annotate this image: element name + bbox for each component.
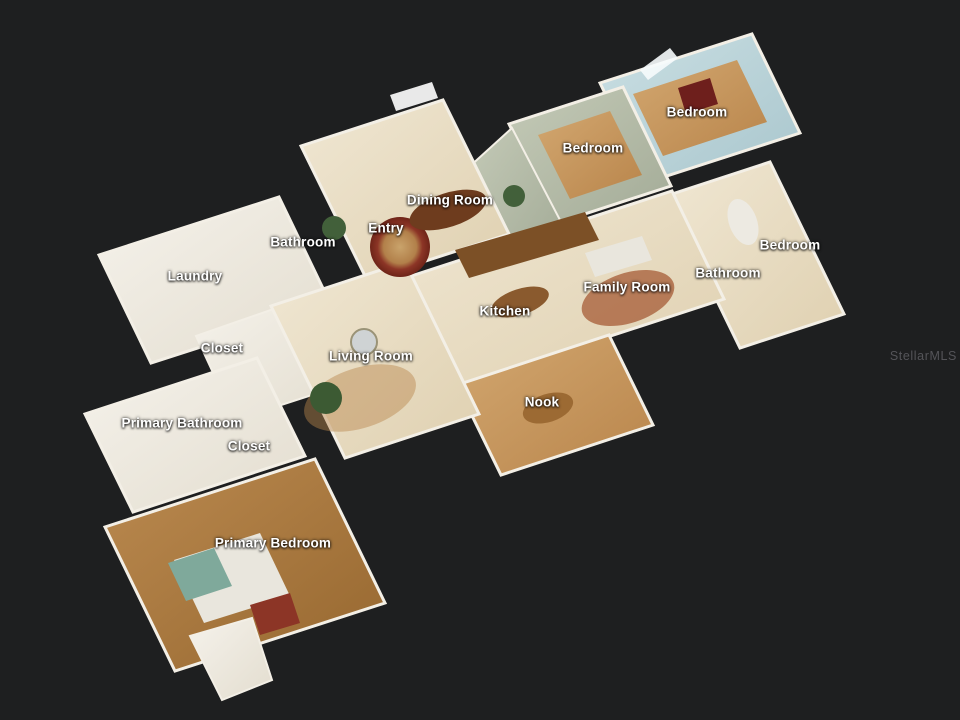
plant-dining-right [503,185,525,207]
living-room-mirror [351,329,377,355]
plant-entry-left [322,216,346,240]
dollhouse-render [0,0,960,720]
watermark: StellarMLS [890,349,957,363]
plant-living [310,382,342,414]
floorplan-canvas: BedroomBedroomDining RoomEntryBathroomBe… [0,0,960,720]
